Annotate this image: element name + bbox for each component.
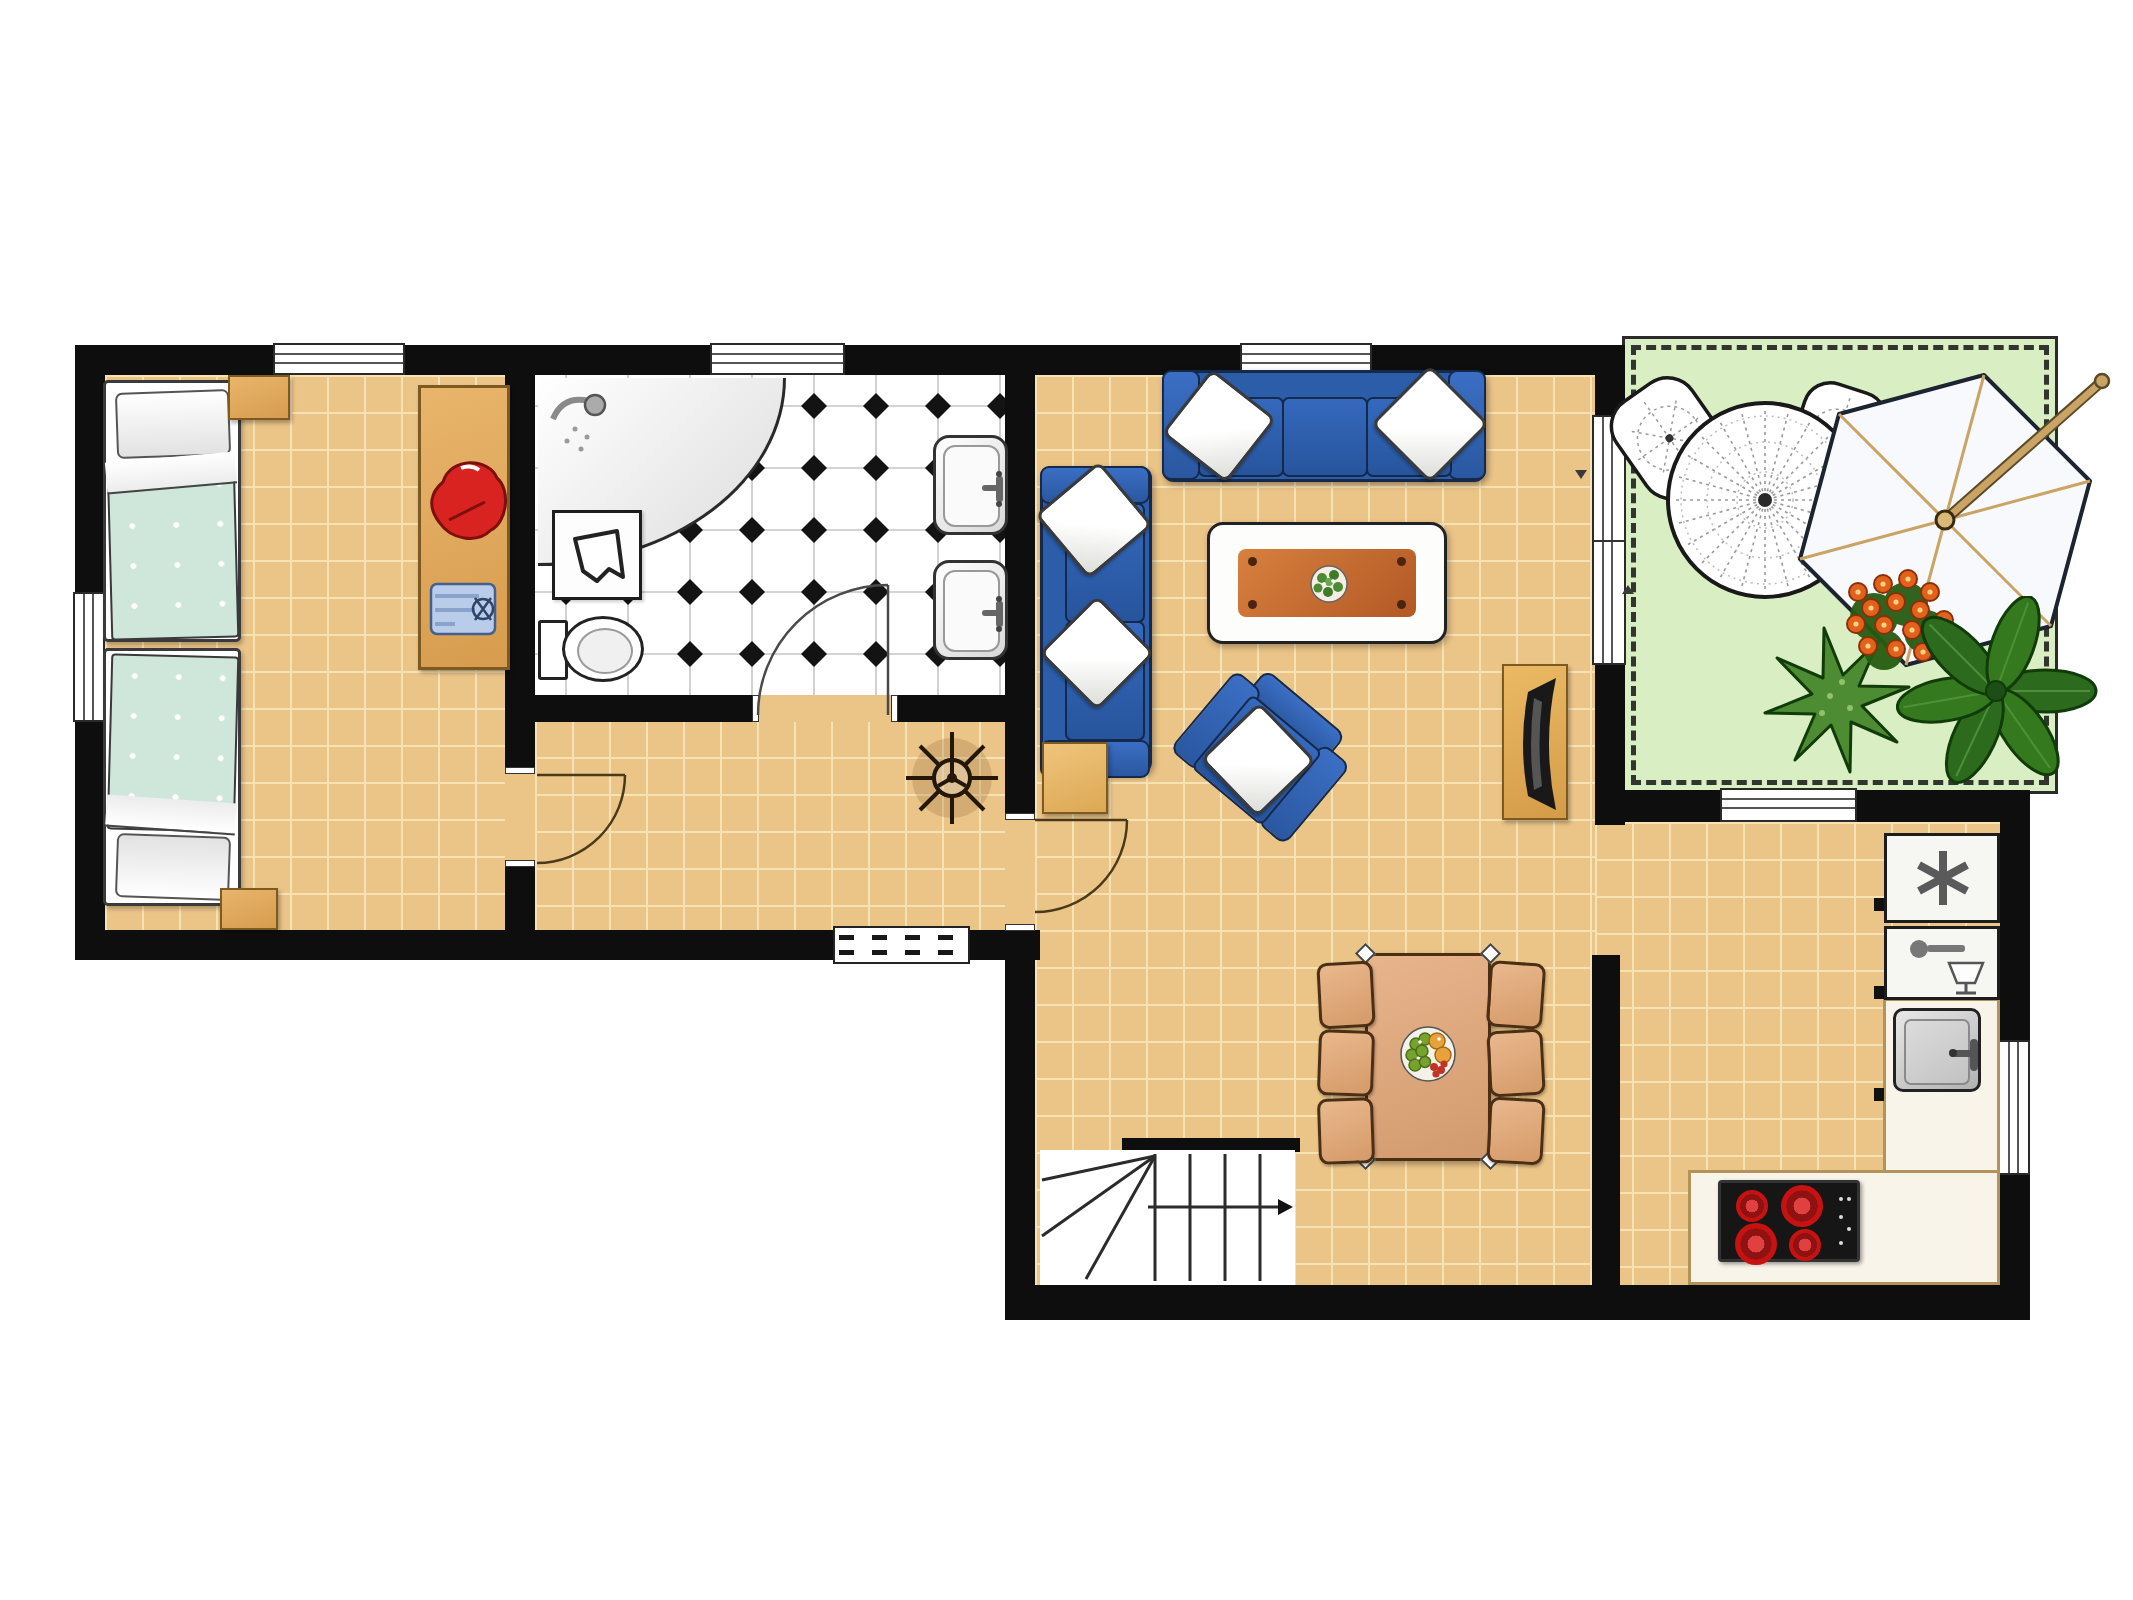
side-table	[1042, 742, 1108, 814]
blue-shirt	[429, 580, 503, 642]
faucet-icon	[978, 593, 1008, 633]
bed-pillow	[115, 833, 231, 901]
door-to-bedroom	[505, 760, 645, 880]
tv-stand	[1502, 664, 1568, 820]
window-bedroom-left	[73, 592, 105, 722]
table-plant-icon	[1308, 563, 1350, 605]
cabinet-hinge	[1874, 986, 1884, 999]
window-bathroom-top	[710, 343, 845, 375]
nightstand-top	[228, 375, 290, 420]
dishwasher-icon	[1897, 933, 1997, 997]
door-to-living-room	[1030, 812, 1155, 937]
leafy-plant	[1896, 596, 2100, 792]
window-kitchen-right	[1998, 1040, 2030, 1175]
cabinet-hinge	[1874, 898, 1884, 911]
dining-chair	[1486, 1029, 1545, 1098]
wall-bottom-main	[1005, 1285, 2030, 1320]
dining-chair	[1486, 1097, 1545, 1166]
slide-arrow-up-icon	[1622, 585, 1634, 594]
red-garment	[423, 450, 509, 566]
toilet-bowl	[562, 616, 644, 682]
freezer	[1884, 833, 2000, 923]
dresser	[418, 385, 510, 670]
cooktop	[1718, 1180, 1860, 1262]
laundry-basket	[552, 510, 642, 600]
cabinet-hinge	[1874, 1088, 1884, 1101]
washbasin-1	[933, 435, 1008, 535]
dining-chair	[1486, 960, 1546, 1030]
window-bedroom-top	[273, 343, 405, 375]
door-to-bathroom	[745, 575, 900, 725]
wall-kitchen-partition	[1592, 955, 1620, 1285]
dining-chair	[1317, 1029, 1375, 1097]
nightstand-bottom	[220, 888, 278, 930]
entrance-mat	[833, 926, 970, 964]
snowflake-icon	[1914, 849, 1972, 907]
tv-icon	[1504, 666, 1570, 822]
bed-pillow	[115, 389, 231, 459]
fruit-bowl-icon	[1398, 1024, 1458, 1084]
faucet-icon	[1948, 1033, 1984, 1077]
dining-chair	[1316, 961, 1375, 1030]
faucet-icon	[978, 468, 1008, 508]
window-kitchen-patio	[1720, 788, 1857, 822]
staircase	[1040, 1150, 1295, 1285]
ceiling-fan-icon	[900, 726, 1004, 830]
single-bed-2	[103, 648, 241, 906]
washbasin-2	[933, 560, 1008, 660]
dishwasher	[1884, 926, 2000, 1000]
coffee-table	[1207, 522, 1447, 644]
shower-head-icon	[545, 385, 625, 465]
floor-plan	[0, 0, 2133, 1600]
dining-chair	[1317, 1097, 1375, 1165]
single-bed-1	[103, 380, 241, 642]
kitchen-sink	[1893, 1008, 1981, 1092]
slide-arrow-down-icon	[1575, 470, 1587, 479]
